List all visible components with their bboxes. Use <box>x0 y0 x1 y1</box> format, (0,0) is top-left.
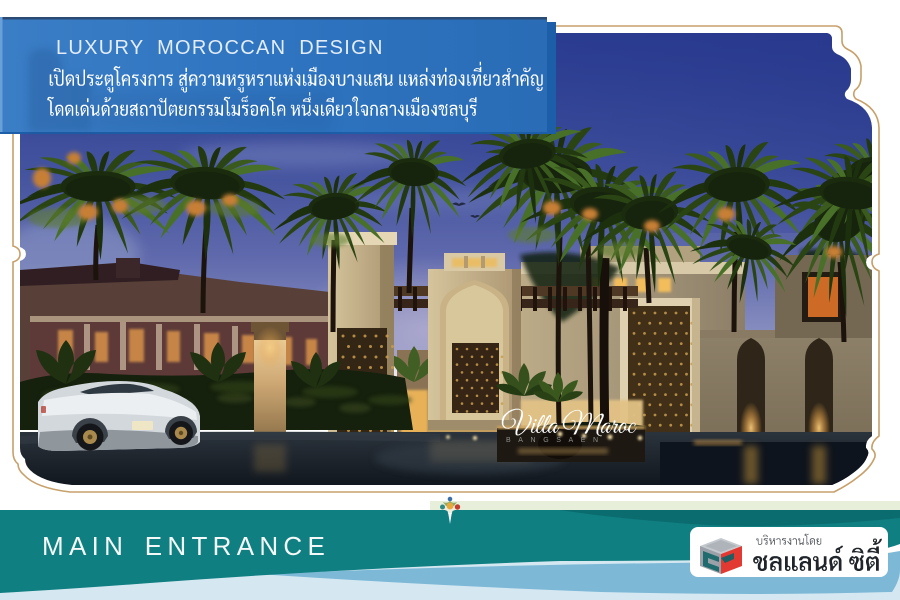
svg-text:BANGSAEN: BANGSAEN <box>506 437 606 444</box>
svg-text:MAIN ENTRANCE: MAIN ENTRANCE <box>42 531 330 561</box>
svg-text:LUXURY MOROCCAN DESIGN: LUXURY MOROCCAN DESIGN <box>56 37 384 59</box>
